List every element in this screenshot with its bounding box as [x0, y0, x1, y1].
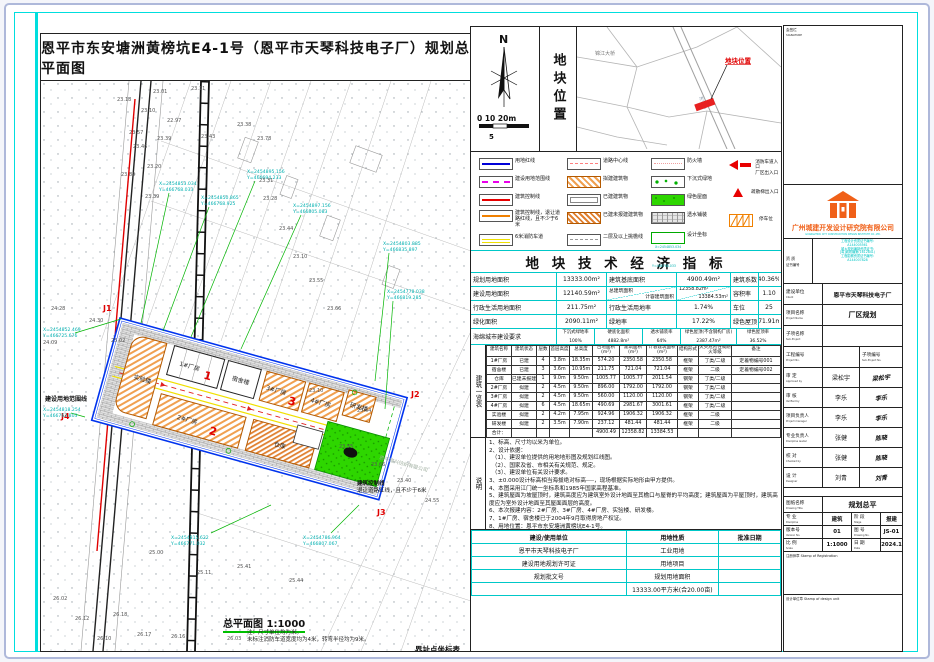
approval-cell [472, 583, 627, 596]
spot-elevation: 23.57 [129, 130, 143, 136]
coord-label: X=2454815.622 [171, 535, 209, 541]
structure-type: 钢架 [678, 392, 699, 401]
spot-elevation: 24.55 [425, 498, 439, 504]
floor-area: 12358.82 [620, 428, 647, 437]
approval-row: 恩平市天琴科技电子厂 工业用地 [472, 544, 781, 557]
spot-elevation: 23.66 [371, 462, 385, 468]
project-no [823, 347, 860, 367]
footprint-area: 211.75 [593, 365, 620, 374]
spot-elevation: 25.41 [237, 564, 251, 570]
indicator-value: 211.75m² [557, 301, 607, 314]
person-row: 设 计Designer 刘青 刘青 [784, 468, 902, 488]
spot-elevation: 24.30 [89, 318, 103, 324]
field-label-en: Drawing No. [854, 533, 877, 537]
countable-floor-area: 481.44 [647, 419, 678, 428]
spot-elevation: 23.39 [157, 136, 171, 142]
sponge-city-label: 海绵城市建设要求 [471, 329, 557, 344]
building-table-row: 仓库 已建未报建 1 9.0m 9.50m 1005.77 1005.77 20… [487, 374, 781, 383]
building-floors: 6 [537, 401, 550, 410]
note-line: 3、±0.000设计标高相当海拔绝对标高----，现场根据实际地形由甲方提供。 [489, 478, 778, 486]
remark [732, 392, 781, 401]
indicator-label: 建筑基底面积 [607, 273, 677, 286]
role-label-en: Designer [786, 479, 818, 483]
remark [732, 410, 781, 419]
building-status: 已建未报建 [512, 374, 537, 383]
note-line: 5、建筑屋面为坡屋顶时，建筑高度应为建筑室外设计地面至其檐口与屋脊的平均高度；建… [489, 493, 778, 508]
note-line: 8、用地位置：恩平市东安塘洲黄榜坑E4-1号。 [489, 524, 778, 529]
remark [732, 419, 781, 428]
floor-area: 721.04 [620, 365, 647, 374]
legend-swatch-proposed-building [567, 176, 601, 188]
person-row: 项目负责人Project manager 李乐 李乐 [784, 408, 902, 428]
scale-tick: 5 [489, 133, 494, 141]
vertex-label: J3 [376, 508, 386, 517]
control-line-note: 退让道路红线，且不少于6米 [357, 486, 427, 494]
fire-rating: 二级 [699, 419, 732, 428]
building-name: 实验楼 [487, 410, 512, 419]
approval-row: 13333.00平方米(合20.00亩) [472, 583, 781, 596]
field-label-en: Project No. [786, 358, 818, 362]
field-label-en: Drawing Title [786, 506, 818, 510]
col-header: 建筑状态 [512, 346, 537, 357]
coord-label: Y=466819.285 [386, 295, 421, 301]
spot-elevation: 23.31 [259, 178, 273, 184]
approval-cell: 建设用地规划许可证 [472, 557, 627, 570]
scale-text: 0 10 20m [477, 114, 516, 123]
remark [732, 383, 781, 392]
structure-type: 框架 [678, 419, 699, 428]
design-unit-stamp-area: 设计单位章 Stamp of design unit [784, 595, 902, 651]
building-status: 拟建 [512, 419, 537, 428]
legend-swatch-firewall [651, 158, 685, 170]
building-floors: 1 [537, 374, 550, 383]
spot-elevation: 23.55 [339, 444, 353, 450]
building-floors: 2 [537, 383, 550, 392]
field-label-en: Scale [786, 546, 818, 550]
legend-label: 设计坐标 [687, 232, 725, 238]
countable-floor-area: 3001.61 [647, 401, 678, 410]
plan-note-2: 未标注消防车道宽度均为4米，转弯半径均为9米。 [247, 637, 370, 644]
field-label-en: Sub-Project [786, 337, 818, 341]
registration-stamp-area: 注册师章 Stamp of Registration [784, 552, 902, 595]
indicator-label: 行政生活用地面积 [471, 301, 557, 314]
building-status: 已建 [512, 365, 537, 374]
approval-cell [719, 583, 781, 596]
spot-elevation: 26.02 [53, 596, 67, 602]
spot-elevation: 24.09 [43, 340, 57, 346]
notes-vertical-label: 说明 [471, 438, 486, 529]
total-height: 18.65m [570, 401, 593, 410]
cert-line: A144007828 [813, 259, 902, 263]
legend-entrance-arrow: 消防车道入口厂区出入口 [729, 160, 781, 176]
spot-elevation: 23.18 [117, 97, 131, 103]
spot-elevation: 23.11 [191, 86, 205, 92]
legend-label: 二层及以上挑檐线 [603, 234, 645, 240]
drawing-frame-binding-edge [35, 12, 38, 652]
spot-elevation: 23.44 [357, 408, 371, 414]
countable-floor-area: 13384.53 [647, 428, 678, 437]
legend-label: 下沉式绿地 [687, 176, 725, 182]
location-map-svg: 锦江大桥 东安路 地块位置 [577, 27, 781, 149]
spot-elevation: 23.20 [147, 164, 161, 170]
notes-section: 说明 1、标高、尺寸均以米为单位。2、设计依据： （1）、建设单位提供的用地地形… [471, 438, 781, 530]
building-table-row: 1#厂房 已建 4 3.8m 18.35m 574.20 2350.58 235… [487, 356, 781, 365]
project-row: 项目名称Project Name 厂区规划 [784, 305, 902, 326]
spot-elevation: 25.11 [197, 570, 211, 576]
approval-cell [719, 557, 781, 570]
note-line: 7、1#厂房、宿舍楼已于2004年9月取得房地产权证。 [489, 516, 778, 524]
building-table-header: 建筑名称建筑状态层数首层高度总高度占地面积(m²)建筑面积(m²)计容建筑面积(… [487, 346, 781, 357]
field-label-en: Date [854, 546, 877, 550]
project-name: 厂区规划 [823, 305, 902, 325]
site-plan-map: 实验楼 1#厂房 宿舍楼 3#厂房 4#厂房 研发楼 2#厂房 仓库 1 2 3 [40, 80, 472, 652]
field-label: 项目名称 [786, 310, 822, 316]
field-label: 子项编号 [862, 352, 902, 358]
coord-label: Y=466805.083 [292, 209, 327, 215]
note-line: 1、标高、尺寸均以米为单位。 [489, 440, 778, 448]
first-floor-height: 4.2m [550, 410, 570, 419]
spot-elevation: 25.02 [111, 338, 125, 344]
coord-label: X=2454803.885 [383, 241, 421, 247]
building-floors: 4 [537, 356, 550, 365]
building-floors [537, 428, 550, 437]
person-row: 审 核Verified by 李乐 李乐 [784, 388, 902, 408]
first-floor-height: 4.5m [550, 392, 570, 401]
first-floor-height: 3.6m [550, 365, 570, 374]
indicator-label: 下沉式绿地率 [557, 329, 594, 335]
discipline-stage-row: 专 业Discipline 建筑 阶 段Stage 报建 [784, 513, 902, 526]
indicator-value: 25 [759, 301, 779, 314]
bridge-label: 锦江大桥 [595, 50, 615, 57]
total-height: 9.50m [570, 383, 593, 392]
col-header: 火灾危险性或耐火等级 [699, 346, 732, 357]
building-list: 建筑一览表 建筑名称建筑状态层数首层高度总高度占地面积(m²)建筑面积(m²)计… [471, 345, 781, 438]
indicator-value-diagonal: 12358.82m²13384.53m² [677, 287, 731, 300]
legend-swatch-sunken-green [651, 176, 685, 188]
location-panel-label: 地块位置 [540, 27, 577, 151]
approval-cell: 13333.00平方米(合20.00亩) [626, 583, 719, 596]
role-label: 专业负责人 [786, 433, 822, 439]
first-floor-height: 4.5m [550, 401, 570, 410]
coord-label: Y=466835.897 [382, 247, 417, 253]
fire-rating: 丁类/二级 [699, 374, 732, 383]
field-label-en: Client [786, 295, 818, 299]
floor-area: 1792.00 [620, 383, 647, 392]
field-label: 专 业 [786, 514, 822, 520]
remark [732, 428, 781, 437]
first-floor-height: 3.5m [550, 419, 570, 428]
legend-swatch-overhang-line [567, 234, 601, 246]
countable-floor-area: 2011.54 [647, 374, 678, 383]
entrance-arrow-icon [729, 160, 738, 170]
field-label: 日 期 [854, 540, 880, 546]
spot-elevation: 23.44 [279, 226, 293, 232]
structure-type: 钢架 [678, 383, 699, 392]
scale-value: 1:1000 [823, 539, 852, 551]
indicator-label: 绿地率 [607, 315, 677, 328]
building-status: 拟建 [512, 383, 537, 392]
building-table-row: 宿舍楼 已建 3 3.6m 10.95m 211.75 721.04 721.0… [487, 365, 781, 374]
legend-label: 用地红线 [515, 158, 561, 164]
site-plan-svg: 实验楼 1#厂房 宿舍楼 3#厂房 4#厂房 研发楼 2#厂房 仓库 1 2 3 [41, 81, 471, 651]
building-name: 1#厂房 [487, 356, 512, 365]
legend-label: 建筑控制线 [515, 194, 561, 200]
drawing-title-value: 规划总平 [823, 497, 902, 512]
spot-elevation: 22.97 [167, 118, 181, 124]
legend-label: 消防车道入口 [755, 160, 778, 170]
vertex-label: J2 [410, 390, 420, 399]
coord-label: X=2454852.469 [43, 327, 81, 333]
approval-cell [719, 544, 781, 557]
scale-date-row: 比 例Scale 1:1000 日 期Date 2024.1 [784, 539, 902, 552]
approval-cell: 规划用地面积 [626, 570, 719, 583]
floor-area: 1005.77 [620, 374, 647, 383]
col-header: 建设/使用单位 [472, 531, 627, 544]
right-panel: N 0 10 20m 5 地块位置 [470, 26, 782, 652]
legend: 用地红线 建设用地范围线 建筑控制线 建筑控制线，退让道路红线，且不少于6米 6… [471, 152, 781, 251]
remark: 定着物编号002 [732, 365, 781, 374]
legend-label: 透水铺装 [687, 212, 725, 218]
spot-elevation: 26.03 [227, 636, 241, 642]
building-status: 已建 [512, 356, 537, 365]
spot-elevation: 23.43 [201, 134, 215, 140]
structure-type: 框架 [678, 356, 699, 365]
legend-label: 建筑控制线，退让道路红线，且不少于6米 [515, 210, 561, 228]
plan-note-1: 注：尺寸单位均为米。 [247, 630, 370, 637]
fire-rating: 丁类/二级 [699, 383, 732, 392]
subproject-row: 子项名称Sub-Project [784, 326, 902, 347]
spot-elevation: 23.40 [397, 478, 411, 484]
floor-area: 1906.32 [620, 410, 647, 419]
countable-floor-area: 721.04 [647, 365, 678, 374]
indicator-label: 容积率 [731, 287, 759, 300]
legend-label: 6米消防车道 [515, 234, 561, 240]
stamp-label-en: Stamp of design unit [804, 597, 839, 601]
building-name: 3#厂房 [487, 392, 512, 401]
indicator-value: 100% [557, 339, 594, 344]
company-name-en: GUANGZHOU CITY CONSTRUCTION DESIGN INSTI… [793, 232, 893, 235]
spacer-row [784, 488, 902, 497]
floor-area: 2981.67 [620, 401, 647, 410]
footprint-area: 237.12 [593, 419, 620, 428]
field-label: 阶 段 [854, 514, 880, 520]
legend-label: 道路中心线 [603, 158, 645, 164]
approval-cell: 工业用地 [626, 544, 719, 557]
boundary-table-title: 界址点坐标表 [415, 644, 460, 652]
col-header: 计容建筑面积(m²) [647, 346, 678, 357]
indicator-label: 绿化面积 [471, 315, 557, 328]
field-label: 建设单位 [786, 289, 822, 295]
site-marker-label: 地块位置 [725, 56, 752, 65]
footprint-area: 1005.77 [593, 374, 620, 383]
date-value: 2024.1 [881, 539, 902, 551]
person-name: 刘青 [823, 468, 860, 487]
legend-swatch-fire-lane [479, 234, 513, 246]
spot-elevation: 23.46 [133, 144, 147, 150]
indicator-value: 4900.49m² [677, 273, 731, 286]
coord-label: Y=466725.676 [42, 333, 77, 339]
company-block: 广州城建开发设计研究院有限公司 GUANGZHOU CITY CONSTRUCT… [784, 185, 902, 284]
approval-table: 建设/使用单位 用地性质 批准日期 恩平市天琴科技电子厂 工业用地 建设用地规划… [471, 530, 781, 596]
indicator-value: 64% [643, 339, 680, 344]
spot-elevation: 26.16 [171, 634, 185, 640]
countable-floor-area: 1792.00 [647, 383, 678, 392]
spot-elevation: 23.10 [309, 388, 323, 394]
legend-label: 已建建筑物 [603, 194, 645, 200]
stamp-label: 注册师章 [786, 554, 800, 558]
spot-elevation: 23.10 [141, 108, 155, 114]
remark [732, 401, 781, 410]
approval-row: 建设用地规划许可证 用地项目 [472, 557, 781, 570]
role-label: 项目负责人 [786, 413, 822, 419]
indicator-value: 40.36% [759, 273, 779, 286]
coord-label: X=2454778.038 [387, 289, 425, 295]
coord-label: Y=466807.067 [302, 541, 337, 547]
client-name: 恩平市天琴科技电子厂 [823, 284, 902, 304]
building-table-row: 4#厂房 拟建 6 4.5m 18.65m 490.69 2981.67 300… [487, 401, 781, 410]
indicator-label: 透水铺装率 [643, 329, 680, 335]
legend-swatch-setback-line [479, 210, 513, 222]
spot-elevation: 23.01 [153, 89, 167, 95]
signature-area-label-en: SIGNATURE [786, 33, 802, 37]
vertex-label: J1 [102, 304, 112, 313]
field-label-en: Version No. [786, 533, 818, 537]
fire-rating: 丁类/二级 [699, 392, 732, 401]
role-label: 校 对 [786, 453, 822, 459]
field-label: 图 号 [854, 527, 880, 533]
footprint-area: 4900.49 [593, 428, 620, 437]
indicator-value: 871.91m² [759, 315, 779, 328]
spot-elevation: 26.17 [137, 632, 151, 638]
indicator-table: 规划用地面积13333.00m² 建筑基底面积4900.49m² 建筑系数40.… [471, 273, 781, 345]
indicator-value: 12140.59m² [557, 287, 607, 300]
field-label: 比 例 [786, 540, 822, 546]
approval-cell: 规划批文号 [472, 570, 627, 583]
stage-value: 报建 [881, 513, 902, 525]
note-line: （1）、建设单位提供的用地地形图及规划红线图。 [489, 455, 778, 463]
version-value: 01 [823, 526, 852, 538]
total-height: 7.90m [570, 419, 593, 428]
legend-swatch-construction-scope [479, 176, 513, 188]
building-name: 合计： [487, 428, 512, 437]
coord-label: Y=466768.033 [158, 187, 193, 193]
coord-sample-y: Y=466768.033 [652, 264, 676, 268]
spot-elevation: 26.12 [75, 616, 89, 622]
indicator-label: 绿色屋顶 [731, 315, 759, 328]
legend-parking: 停车位 [729, 214, 773, 227]
project-no-row: 工程编号Project No. 子项编号Sub-Project No. [784, 347, 902, 368]
stamp-label-en: Stamp of Registration [801, 554, 838, 558]
drawing-no-value: JS-01 [881, 526, 902, 538]
field-label-en: Discipline [786, 520, 818, 524]
role-label-en: Discipline leader [786, 439, 818, 443]
control-line-label: 建筑控制线 [357, 479, 385, 487]
coord-label: X=2454895.156 [247, 169, 285, 175]
fire-rating: 丁类/二级 [699, 356, 732, 365]
spot-elevation: 23.66 [327, 306, 341, 312]
spot-elevation: 25.44 [289, 578, 303, 584]
legend-label: 已建未报建建筑物 [603, 212, 645, 218]
approval-cell: 恩平市天琴科技电子厂 [472, 544, 627, 557]
col-header: 建筑名称 [487, 346, 512, 357]
indicator-label: 建设用地面积 [471, 287, 557, 300]
col-header: 备注 [732, 346, 781, 357]
legend-label: 疏散梯出入口 [751, 190, 779, 195]
building-name: 2#厂房 [487, 383, 512, 392]
person-signature: 刘青 [859, 466, 903, 489]
notes-text: 1、标高、尺寸均以米为单位。2、设计依据： （1）、建设单位提供的用地地形图及规… [486, 438, 781, 529]
first-floor-height: 9.0m [550, 374, 570, 383]
approval-row: 规划批文号 规划用地面积 [472, 570, 781, 583]
col-header: 层数 [537, 346, 550, 357]
fire-rating: 丁类/二级 [699, 401, 732, 410]
indicator-value: 36.52% [737, 339, 779, 344]
structure-type [678, 428, 699, 437]
coord-label: X=2454850.865 [201, 195, 239, 201]
field-label: 版本号 [786, 527, 822, 533]
countable-floor-area: 1906.32 [647, 410, 678, 419]
field-label: 子项名称 [786, 331, 822, 337]
col-header: 批准日期 [719, 531, 781, 544]
entrance-arrow-tail [740, 163, 751, 166]
coord-sample-x: X=2454853.034 [655, 245, 681, 249]
person-name: 张健 [823, 448, 860, 467]
col-header: 用地性质 [626, 531, 719, 544]
company-name: 广州城建开发设计研究院有限公司 [784, 225, 902, 232]
person-row: 校 对Checked by 张健 陈晓 [784, 448, 902, 468]
total-height: 10.95m [570, 365, 593, 374]
indicator-label: 绿色屋顶率 [737, 329, 779, 335]
person-row: 审 定Approved by 梁松宇 梁松宇 [784, 368, 902, 388]
indicator-label: 计容建筑面积 [645, 293, 674, 300]
floor-area: 1120.00 [620, 392, 647, 401]
total-height: 18.35m [570, 356, 593, 365]
countable-floor-area: 1120.00 [647, 392, 678, 401]
role-label: 审 核 [786, 393, 822, 399]
location-row: N 0 10 20m 5 地块位置 [471, 27, 781, 152]
floor-area: 481.44 [620, 419, 647, 428]
legend-label: 厂区出入口 [755, 171, 778, 176]
indicator-label: 绿色屋顶(不含钢构厂房) [681, 329, 736, 335]
structure-type: 框架 [678, 410, 699, 419]
version-no-row: 版本号Version No. 01 图 号Drawing No. JS-01 [784, 526, 902, 539]
coord-label: Y=466771.032 [170, 541, 205, 547]
countable-floor-area: 2350.58 [647, 356, 678, 365]
role-label-en: Verified by [786, 399, 818, 403]
role-label-en: Project manager [786, 419, 818, 423]
indicator-value: 4882.8m² [595, 339, 642, 344]
north-letter: N [499, 33, 508, 46]
approval-cell: 用地项目 [626, 557, 719, 570]
subproject-name [823, 326, 902, 346]
structure-type: 钢架 [678, 374, 699, 383]
legend-label: 停车位 [759, 217, 773, 222]
people-rows: 审 定Approved by 梁松宇 梁松宇 审 核Verified by 李乐… [784, 368, 902, 488]
spot-elevation: 23.78 [257, 136, 271, 142]
building-floors: 3 [537, 365, 550, 374]
role-label-en: Checked by [786, 459, 818, 463]
person-name: 李乐 [823, 388, 860, 407]
legend-swatch-green-roof [651, 194, 685, 206]
legend-label: 建设用地范围线 [515, 176, 561, 182]
indicator-value: 1.74% [677, 301, 731, 314]
field-label-en: Stage [854, 520, 877, 524]
building-floors: 2 [537, 392, 550, 401]
building-name: 4#厂房 [487, 401, 512, 410]
note-line: （3）、建设单位有关设计要求。 [489, 470, 778, 478]
building-floors: 2 [537, 419, 550, 428]
field-label-en: Sub-Project No. [862, 358, 898, 362]
